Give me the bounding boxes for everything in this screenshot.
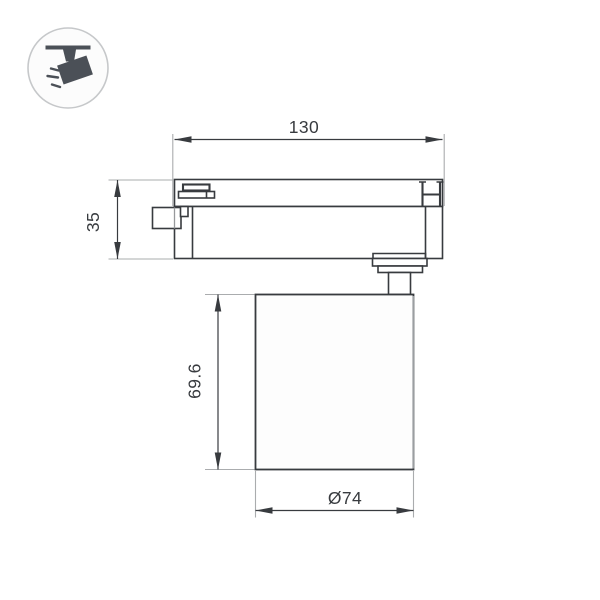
track-bar: [46, 46, 91, 50]
dimension-label: 130: [289, 117, 319, 137]
arrowhead-bottom: [114, 242, 121, 259]
light-ray: [48, 76, 59, 78]
dim-diameter: Ø74: [256, 471, 414, 518]
lamp-neck: [373, 259, 428, 295]
flange-upper: [373, 259, 428, 267]
adapter-notch: [181, 207, 189, 217]
track-adapter: [153, 180, 444, 259]
arrowhead-right: [397, 507, 414, 514]
arrowhead-top: [215, 295, 222, 312]
lock-lever: [153, 208, 182, 229]
flange-lower: [378, 266, 423, 273]
arrowhead-bottom: [215, 453, 222, 470]
arrowhead-left: [256, 507, 273, 514]
dimension-label: 35: [83, 212, 103, 232]
dimension-label: Ø74: [328, 488, 362, 508]
dim-body-height: 69.6: [185, 295, 255, 470]
arrowhead-right: [426, 136, 443, 143]
arrowhead-top: [114, 180, 121, 197]
arrowhead-left: [175, 136, 192, 143]
track-light-legend-icon: [28, 28, 108, 108]
lamp: [256, 295, 414, 470]
adapter-body: [175, 207, 443, 259]
dimension-label: 69.6: [185, 363, 205, 399]
stem: [389, 273, 411, 295]
extension-line: [205, 295, 255, 470]
lamp-body: [256, 295, 414, 470]
technical-drawing: 130 35 69.6 Ø74: [0, 0, 600, 600]
